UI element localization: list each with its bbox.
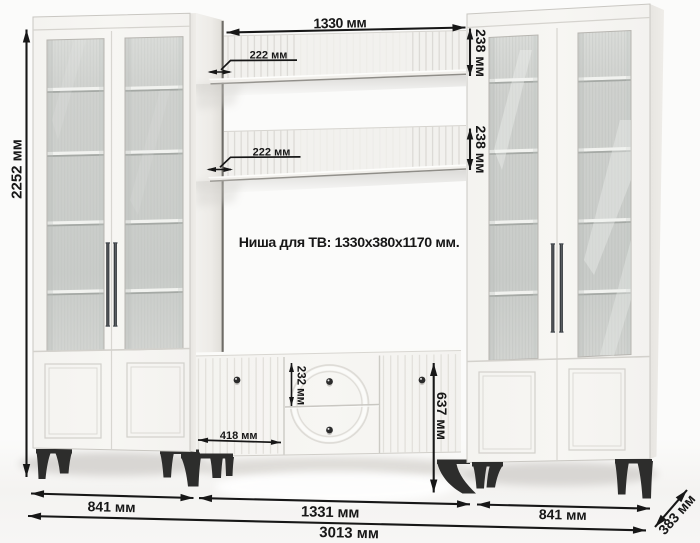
svg-text:Ниша для ТВ: 1330х380х1170 мм.: Ниша для ТВ: 1330х380х1170 мм. [239,235,460,251]
svg-text:238 мм: 238 мм [473,126,489,174]
svg-text:1331 мм: 1331 мм [301,503,360,521]
svg-text:3013 мм: 3013 мм [319,524,379,542]
svg-text:232 мм: 232 мм [295,366,307,405]
svg-text:238 мм: 238 мм [473,29,489,77]
svg-text:2252 мм: 2252 мм [9,139,26,199]
svg-text:841 мм: 841 мм [87,498,135,515]
svg-text:1330 мм: 1330 мм [313,14,366,31]
svg-text:418 мм: 418 мм [220,430,258,442]
svg-text:841 мм: 841 мм [539,506,587,523]
svg-text:637 мм: 637 мм [434,392,450,440]
